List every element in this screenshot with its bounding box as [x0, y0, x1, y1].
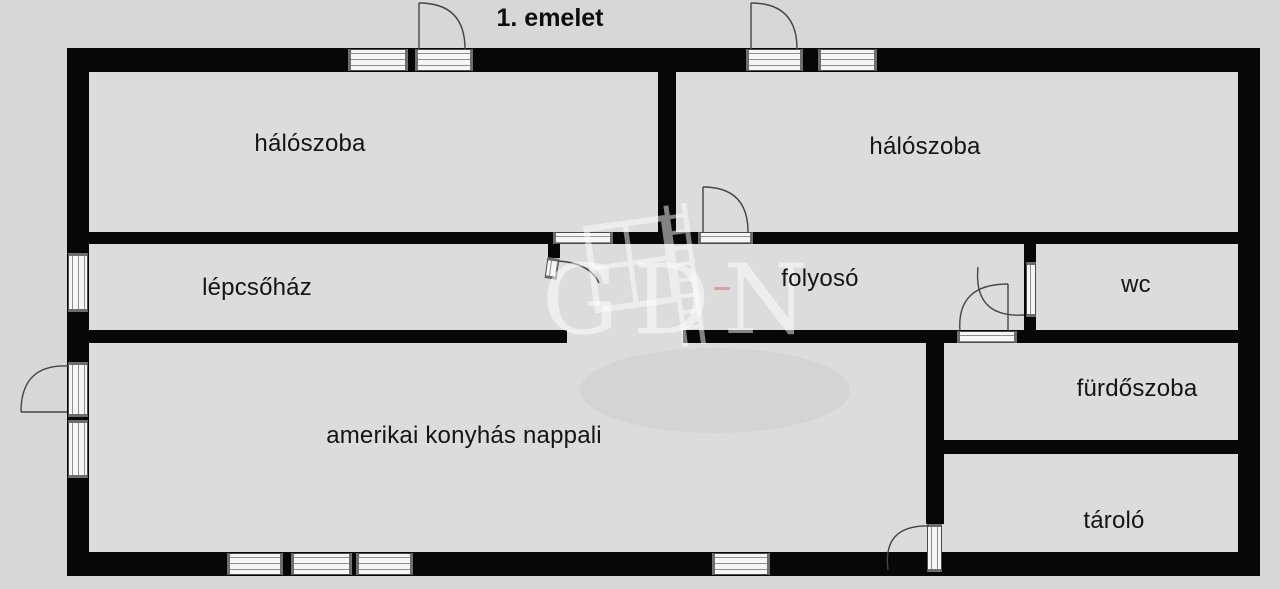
room-label-corridor: folyosó [781, 265, 858, 293]
window-bottom-living-4 [712, 553, 770, 575]
window-bottom-living-3 [356, 553, 413, 575]
door-top-bedroom-right [746, 49, 803, 71]
door-bathroom [957, 331, 1017, 343]
room-label-bedroom-left: hálószoba [254, 130, 365, 158]
room-label-bedroom-right: hálószoba [869, 133, 980, 161]
window-left-staircase [68, 253, 88, 312]
door-arc-top-right [751, 3, 797, 49]
window-top-bedroom-left [348, 49, 408, 71]
room-label-bathroom: fürdőszoba [1077, 375, 1198, 403]
window-top-bedroom-right [818, 49, 877, 71]
scan-smudge [580, 348, 850, 433]
window-bottom-living-1 [227, 553, 283, 575]
window-left-living [68, 420, 88, 478]
door-arc-left-living [21, 366, 68, 412]
window-bottom-living-2 [291, 553, 352, 575]
door-bedroom-left [553, 232, 613, 244]
door-bedroom-right [698, 232, 753, 244]
scan-artifact [714, 287, 730, 290]
watermark-text: GDN [542, 252, 822, 348]
room-label-staircase: lépcsőház [202, 274, 312, 302]
floor-plan: 1. emelet [0, 0, 1280, 589]
room-storage [944, 454, 1238, 552]
floor-title: 1. emelet [496, 4, 603, 33]
room-label-storage: tároló [1083, 507, 1144, 535]
door-storage-leaf [927, 524, 942, 572]
door-wc [1026, 262, 1036, 317]
room-label-living: amerikai konyhás nappali [326, 422, 602, 450]
room-bedroom-left [89, 72, 658, 232]
door-arc-top-left [419, 3, 465, 49]
room-staircase [89, 244, 548, 330]
door-left-living [68, 362, 88, 417]
room-label-wc: wc [1121, 271, 1151, 299]
door-top-bedroom-left [415, 49, 473, 71]
